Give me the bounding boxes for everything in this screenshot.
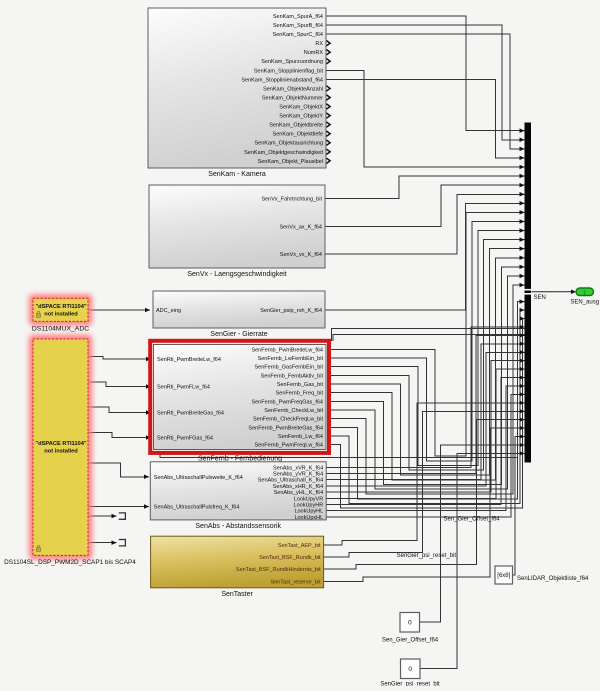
svg-text:SenAbs_UltraschallPulsfreq_K_f: SenAbs_UltraschallPulsfreq_K_f64 [154, 505, 240, 511]
svg-text:SenAbs_Ultraschall_K_f64: SenAbs_Ultraschall_K_f64 [258, 478, 323, 484]
svg-text:SenKam_Objektausrichtung: SenKam_Objektausrichtung [255, 141, 323, 147]
svg-text:SenKam_ObjekteAnzahl: SenKam_ObjekteAnzahl [263, 86, 323, 92]
svg-text:SenGier - Gierrate: SenGier - Gierrate [210, 331, 267, 338]
svg-text:not installed: not installed [44, 449, 78, 455]
svg-text:Sen_Gier_Offset_f64: Sen_Gier_Offset_f64 [444, 517, 501, 523]
svg-text:SenRti_PwmFGas_f64: SenRti_PwmFGas_f64 [157, 436, 213, 442]
svg-text:0: 0 [408, 620, 412, 627]
svg-text:DS1104MUX_ADC: DS1104MUX_ADC [32, 326, 89, 333]
svg-text:SenFernb_GasFernbEin_bit: SenFernb_GasFernbEin_bit [255, 365, 324, 371]
svg-text:SenAbs_xVR_K_f64: SenAbs_xVR_K_f64 [273, 465, 323, 471]
svg-text:SenKam_SpurB_f64: SenKam_SpurB_f64 [273, 23, 323, 29]
svg-text:SenKam_Stopplinienflag_bit: SenKam_Stopplinienflag_bit [254, 68, 324, 74]
svg-text:SEN_ausg: SEN_ausg [570, 300, 599, 306]
svg-text:LookUpxHL: LookUpxHL [294, 515, 323, 521]
svg-text:SenAbs_UltraschallPulsweite_K_: SenAbs_UltraschallPulsweite_K_f64 [154, 475, 243, 481]
svg-text:SenFernb_Lw_f64: SenFernb_Lw_f64 [278, 434, 323, 440]
svg-text:SenKam - Kamera: SenKam - Kamera [208, 171, 266, 178]
svg-text:SenKam_ObjektY: SenKam_ObjektY [279, 114, 323, 120]
svg-text:SenAbs_xHR_K_f64: SenAbs_xHR_K_f64 [273, 484, 323, 490]
svg-text:SenRti_PwmBreiteLw_f64: SenRti_PwmBreiteLw_f64 [157, 357, 221, 363]
svg-text:SenFernb_LwFernbEin_bit: SenFernb_LwFernbEin_bit [258, 356, 324, 362]
svg-text:SenKam_Objektgeschwindigkeit: SenKam_Objektgeschwindigkeit [244, 150, 323, 156]
svg-text:SenFernb_PwmBreiteLw_f64: SenFernb_PwmBreiteLw_f64 [251, 347, 323, 353]
svg-text:"dSPACE RTI1104": "dSPACE RTI1104" [35, 441, 86, 447]
svg-text:SenFernb_Gas_bit: SenFernb_Gas_bit [277, 382, 324, 388]
svg-text:SenFernb_FernbAktiv_bit: SenFernb_FernbAktiv_bit [261, 373, 324, 379]
svg-text:SenRti_PwmFLw_f64: SenRti_PwmFLw_f64 [157, 385, 210, 391]
svg-text:SenKam_Stopplinienabstand_f64: SenKam_Stopplinienabstand_f64 [241, 77, 323, 83]
svg-text:DS1104SL_DSP_PWM2D_SCAP1 bis S: DS1104SL_DSP_PWM2D_SCAP1 bis SCAP4 [4, 559, 136, 566]
svg-text:SenAbs_yVR_K_f64: SenAbs_yVR_K_f64 [273, 472, 323, 478]
svg-text:NumRX: NumRX [304, 50, 324, 56]
svg-text:SenGier_psi_reset_bit: SenGier_psi_reset_bit [380, 682, 440, 687]
svg-text:SenKam_SpurC_f64: SenKam_SpurC_f64 [273, 32, 323, 38]
svg-text:RX: RX [315, 41, 323, 47]
svg-text:SenAbs - Abstandssensorik: SenAbs - Abstandssensorik [195, 523, 281, 530]
svg-text:SenFernb_CheckLw_bit: SenFernb_CheckLw_bit [264, 408, 323, 414]
svg-text:SenKam_Objekt_Plausibel: SenKam_Objekt_Plausibel [258, 159, 323, 165]
svg-text:1: 1 [583, 290, 586, 296]
svg-text:SenTast_AEP_bit: SenTast_AEP_bit [278, 543, 321, 549]
svg-text:[6x8]: [6x8] [497, 573, 510, 579]
svg-text:SenGier_psi_reset_bit: SenGier_psi_reset_bit [397, 553, 457, 559]
svg-text:ADC_eing: ADC_eing [156, 308, 181, 314]
svg-text:SenVx_ax_K_f64: SenVx_ax_K_f64 [279, 224, 322, 230]
svg-text:SenKam_Spurzuordnung: SenKam_Spurzuordnung [261, 59, 323, 65]
svg-text:not installed: not installed [44, 312, 78, 318]
svg-text:SenGier_psip_roh_K_f64: SenGier_psip_roh_K_f64 [260, 308, 322, 314]
svg-text:SenRti_PwmBreiteGas_f64: SenRti_PwmBreiteGas_f64 [157, 411, 224, 417]
svg-text:SenFernb_Freq_bit: SenFernb_Freq_bit [276, 391, 324, 397]
svg-text:SenAbs_yHL_K_f64: SenAbs_yHL_K_f64 [274, 490, 324, 496]
svg-text:SenTast_BSF_RundkHindernis_bit: SenTast_BSF_RundkHindernis_bit [236, 567, 321, 573]
svg-text:SenVx - Laengsgeschwindigkeit: SenVx - Laengsgeschwindigkeit [187, 271, 286, 278]
svg-text:SEN: SEN [534, 295, 546, 301]
svg-text:SenKam_Objektbreite: SenKam_Objektbreite [269, 123, 323, 129]
svg-text:SenKam_SpurA_f64: SenKam_SpurA_f64 [273, 14, 323, 20]
svg-text:Sen_Gier_Offset_f64: Sen_Gier_Offset_f64 [382, 638, 439, 644]
svg-text:SenVx_vx_K_f64: SenVx_vx_K_f64 [280, 252, 322, 258]
svg-text:SenFernb_PwmBreiteGas_f64: SenFernb_PwmBreiteGas_f64 [248, 425, 323, 431]
svg-text:LookUpyHR: LookUpyHR [294, 503, 324, 509]
svg-text:SenTast_BSF_Rundk_bit: SenTast_BSF_Rundk_bit [259, 555, 321, 561]
svg-text:SenFernb_CheckFreqLw_bit: SenFernb_CheckFreqLw_bit [253, 417, 323, 423]
svg-text:SenVx_Fahrtrichtung_bit: SenVx_Fahrtrichtung_bit [261, 197, 322, 203]
svg-text:SenTast_reserve_bit: SenTast_reserve_bit [270, 579, 321, 585]
svg-text:LookUpyHL: LookUpyHL [294, 509, 323, 515]
svg-text:0: 0 [408, 666, 412, 673]
svg-text:SenLIDAR_Objektliste_f64: SenLIDAR_Objektliste_f64 [517, 576, 589, 582]
svg-text:SenKam_Objekttiefe: SenKam_Objekttiefe [273, 132, 323, 138]
svg-text:"dSPACE RTI1104": "dSPACE RTI1104" [35, 304, 86, 310]
svg-text:SenTaster: SenTaster [221, 591, 253, 598]
svg-text:SenFernb_PwmFreqGas_f64: SenFernb_PwmFreqGas_f64 [251, 399, 323, 405]
svg-text:LookUpyVR: LookUpyVR [294, 496, 323, 502]
svg-text:SenFernb_PwmFreqLw_f64: SenFernb_PwmFreqLw_f64 [255, 443, 323, 449]
svg-text:SenKam_ObjektNummer: SenKam_ObjektNummer [262, 96, 323, 102]
svg-text:SenKam_ObjektX: SenKam_ObjektX [279, 105, 323, 111]
